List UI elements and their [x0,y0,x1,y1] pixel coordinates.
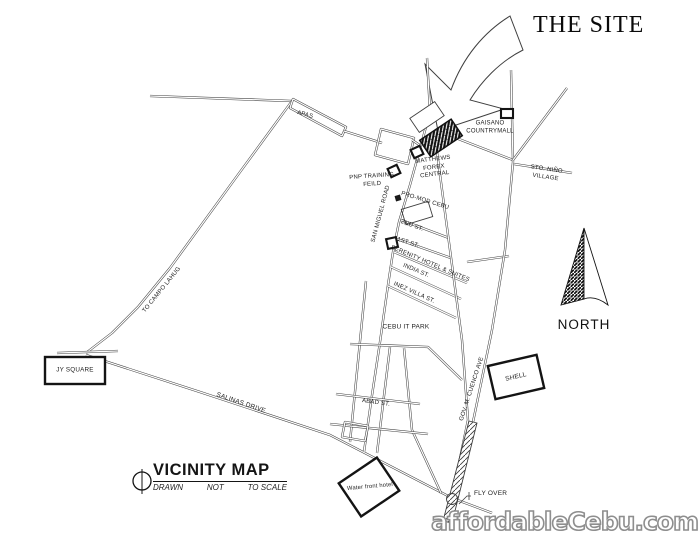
vicinity-map: THE SITE APAS GAISANO COUNTRYMALL MATTHE… [0,0,700,540]
legend-note-drawn: DRAWN [153,483,183,492]
legend-note-not: NOT [207,483,224,492]
label-fly-over: FLY OVER [474,490,507,497]
north-arrow-icon [561,228,608,305]
the-site-title: THE SITE [533,12,644,39]
legend-note-scale: TO SCALE [248,483,287,492]
map-linework [0,0,700,540]
label-north: NORTH [558,317,611,332]
legend-title: VICINITY MAP [153,461,287,482]
flyover-junction [447,494,458,505]
legend-circle-icon [133,469,151,494]
watermark: affordableCebu.com [431,507,698,536]
label-cebu-it-park: CEBU IT PARK [383,324,430,331]
label-jy-square: JY SQUARE [56,367,93,374]
gaisano-marker [501,109,513,118]
legend-notes: DRAWN NOT TO SCALE [153,483,287,492]
label-gaisano-countrymall: GAISANO COUNTRYMALL [464,121,516,136]
legend: VICINITY MAP DRAWN NOT TO SCALE [153,461,287,492]
